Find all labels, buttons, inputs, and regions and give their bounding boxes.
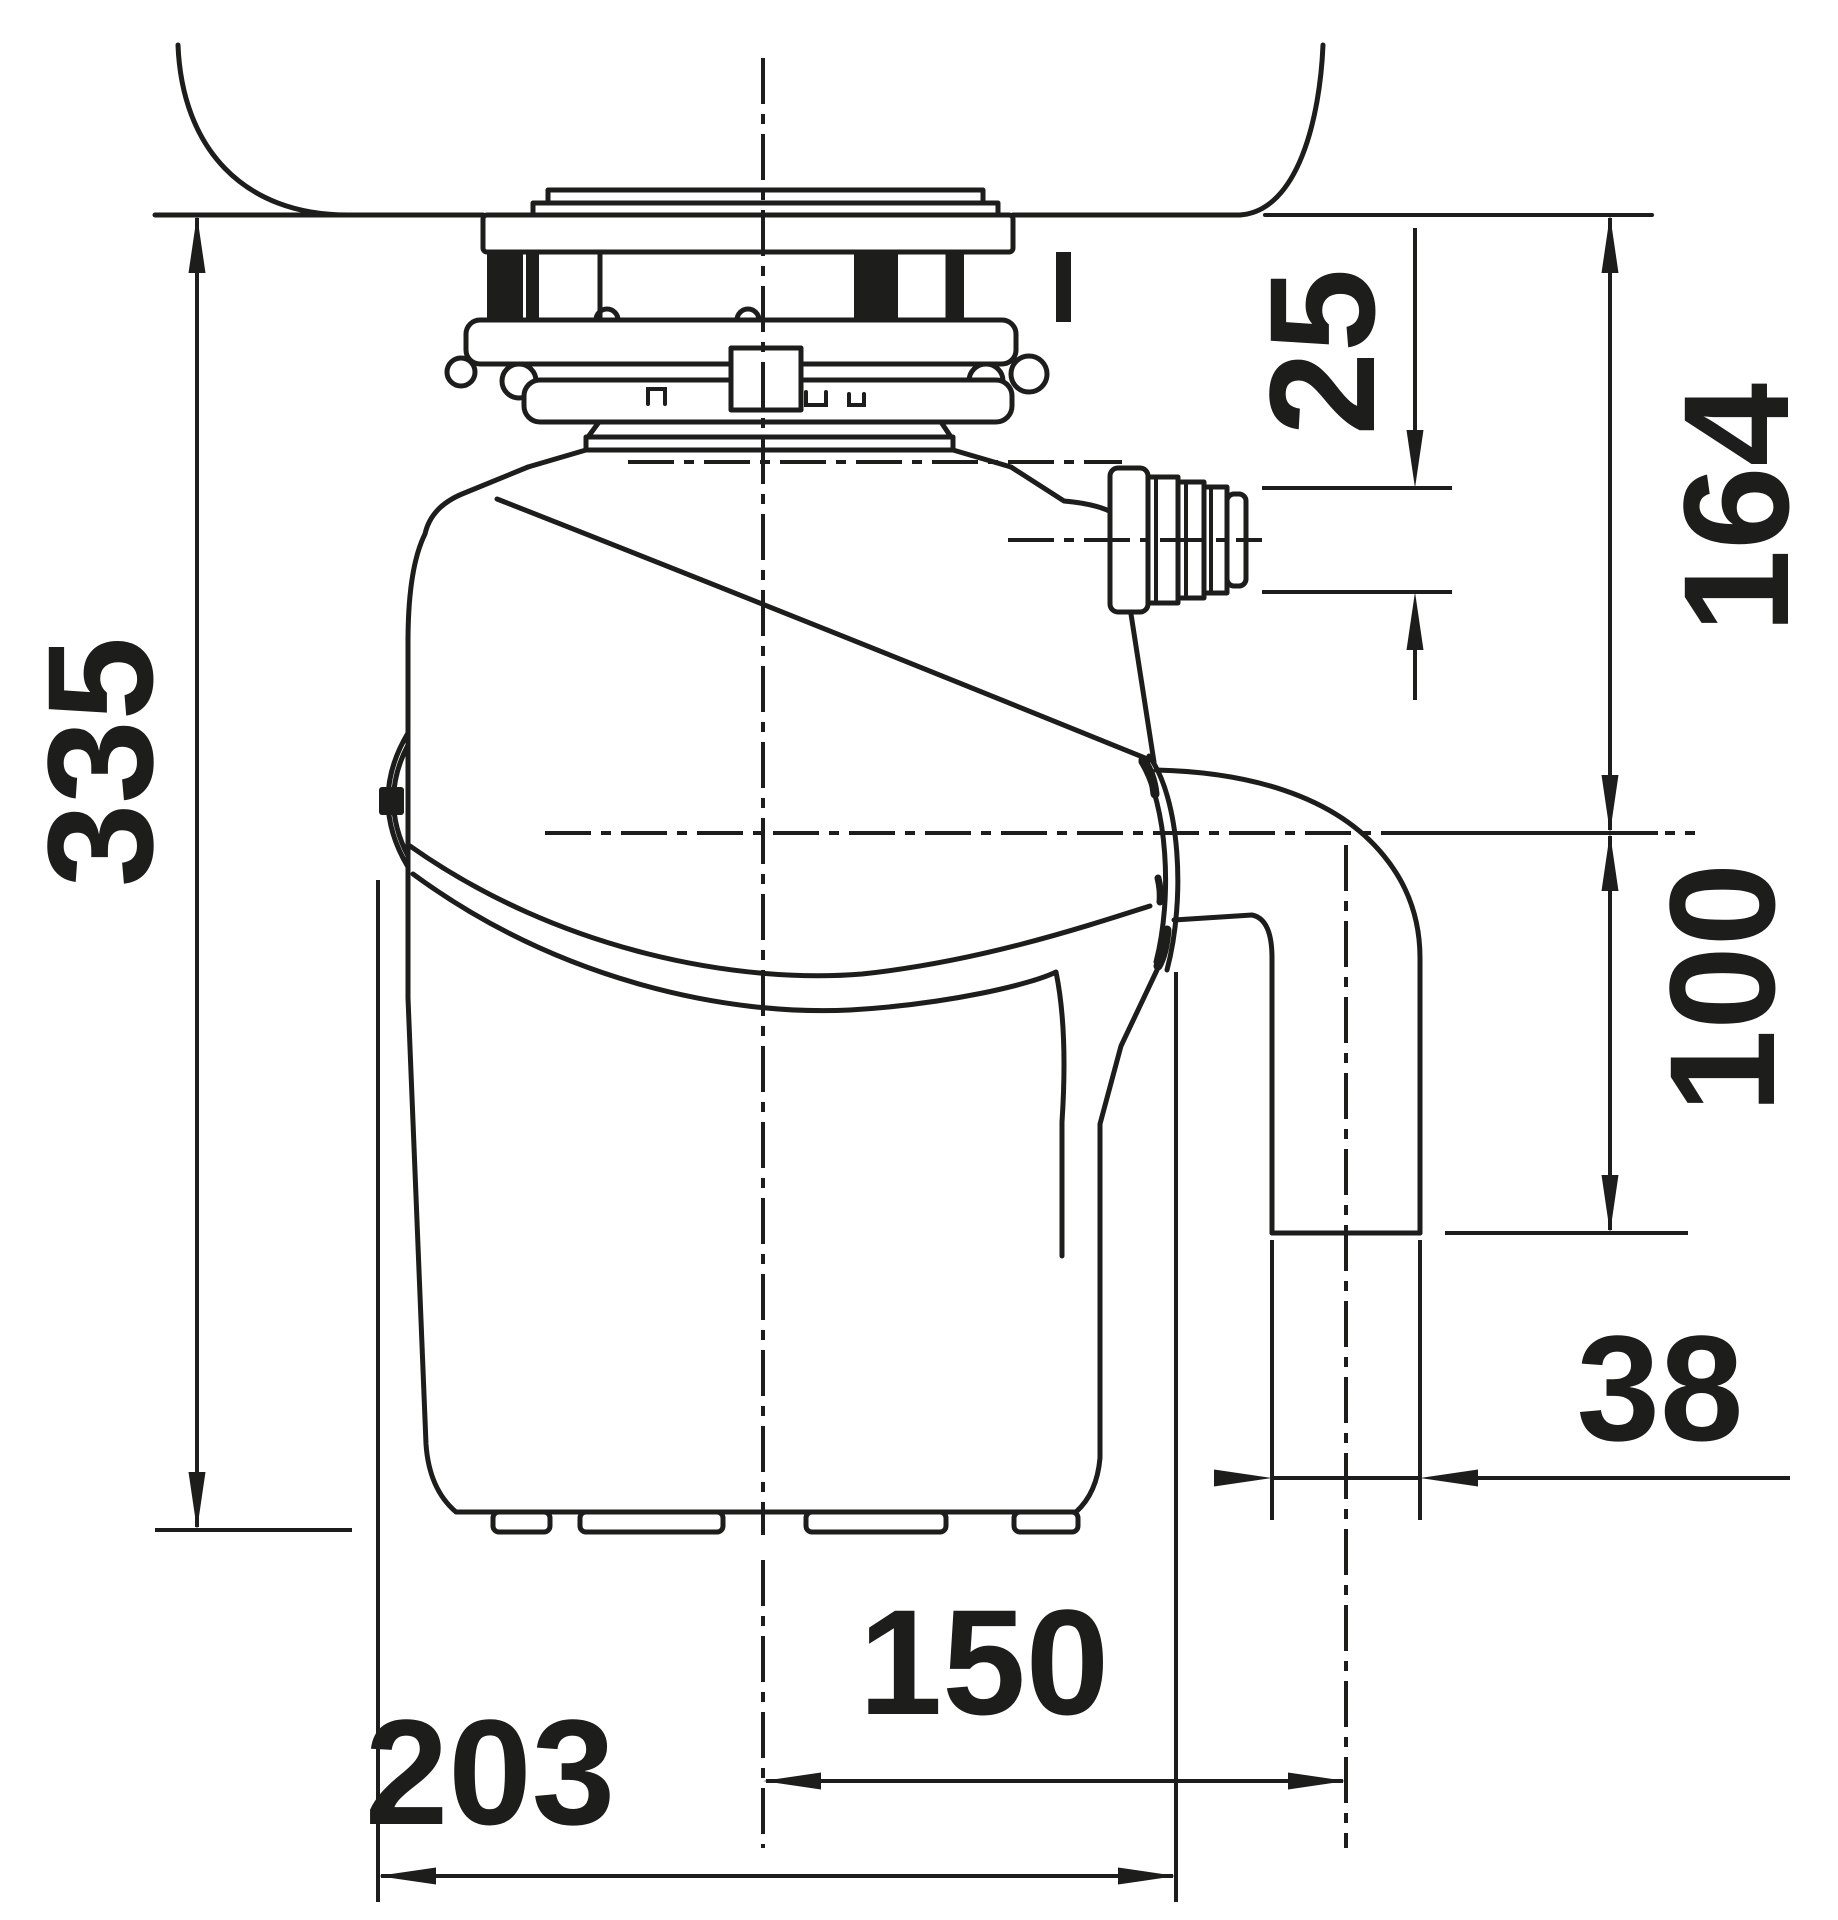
dimension-outlet-pipe-diameter: 38 [1214, 1240, 1790, 1520]
arrowhead-down [1407, 430, 1424, 488]
elbow-inner-edge [1174, 915, 1272, 1233]
arrowhead-down [1602, 1175, 1619, 1233]
dimension-max-body-width: 203 [365, 880, 1176, 1902]
arrowhead-left [1420, 1470, 1478, 1487]
body-foot [580, 1512, 723, 1532]
disposer-dimension-drawing: 335 25 164 100 38 15 [0, 0, 1838, 1920]
dimension-outlet-center-to-end: 100 [1445, 833, 1806, 1233]
mount-stud [487, 252, 523, 322]
arrowhead-down [1602, 775, 1619, 833]
mount-lug [731, 348, 801, 410]
mount-stud [526, 252, 539, 322]
arrowhead-up [1602, 215, 1619, 273]
sink-flange [483, 215, 1013, 252]
neck-flare-right [953, 450, 1011, 467]
body-band-lower-edge [410, 846, 1150, 976]
dimension-overall-height: 335 [16, 215, 352, 1530]
body-foot [806, 1512, 946, 1532]
mount-stud [1056, 252, 1071, 322]
neck-ring [586, 437, 953, 450]
dim-label-max-body-width: 203 [365, 1688, 615, 1856]
dim-label-inlet-diameter: 25 [1238, 269, 1406, 436]
dim-label-outlet-center-to-end: 100 [1638, 863, 1806, 1113]
arrowhead-right [1288, 1773, 1346, 1790]
body-outline [408, 467, 1157, 1512]
arrowhead-left [378, 1868, 436, 1885]
disposer-body [379, 467, 1178, 1532]
body-foot [1014, 1512, 1078, 1532]
dimension-inlet-diameter: 25 [1238, 228, 1452, 700]
arrowhead-up [189, 215, 206, 273]
body-foot [493, 1512, 550, 1532]
elbow-outer-edge [1156, 770, 1420, 1233]
dim-label-center-to-outlet-center: 150 [859, 1578, 1109, 1746]
dimension-sink-to-outlet-center: 164 [1602, 215, 1821, 833]
sink-curve-left [178, 45, 348, 215]
sink-curve-right [1240, 45, 1323, 215]
arrowhead-right [1118, 1868, 1176, 1885]
mount-assembly [447, 190, 1071, 467]
neck-flare-left [528, 450, 586, 467]
arrowhead-left [763, 1773, 821, 1790]
dim-label-outlet-pipe-diameter: 38 [1577, 1304, 1744, 1472]
arrowhead-up [1602, 833, 1619, 891]
arrowhead-up [1407, 592, 1424, 650]
outlet-elbow [1156, 770, 1420, 1233]
arrowhead-right [1214, 1470, 1272, 1487]
arrowhead-down [189, 1472, 206, 1530]
band-end-cap-shade [1158, 878, 1160, 902]
dimension-center-to-outlet-center: 150 [763, 1578, 1346, 1790]
dim-label-sink-to-outlet-center: 164 [1652, 383, 1820, 633]
dim-label-overall-height: 335 [16, 637, 184, 887]
mount-spring-curl [1011, 356, 1047, 392]
side-bump-button [379, 787, 404, 815]
technical-drawing-canvas: 335 25 164 100 38 15 [0, 0, 1838, 1920]
body-band-lower-edge-2 [413, 874, 1064, 1122]
mount-stud [947, 252, 964, 322]
